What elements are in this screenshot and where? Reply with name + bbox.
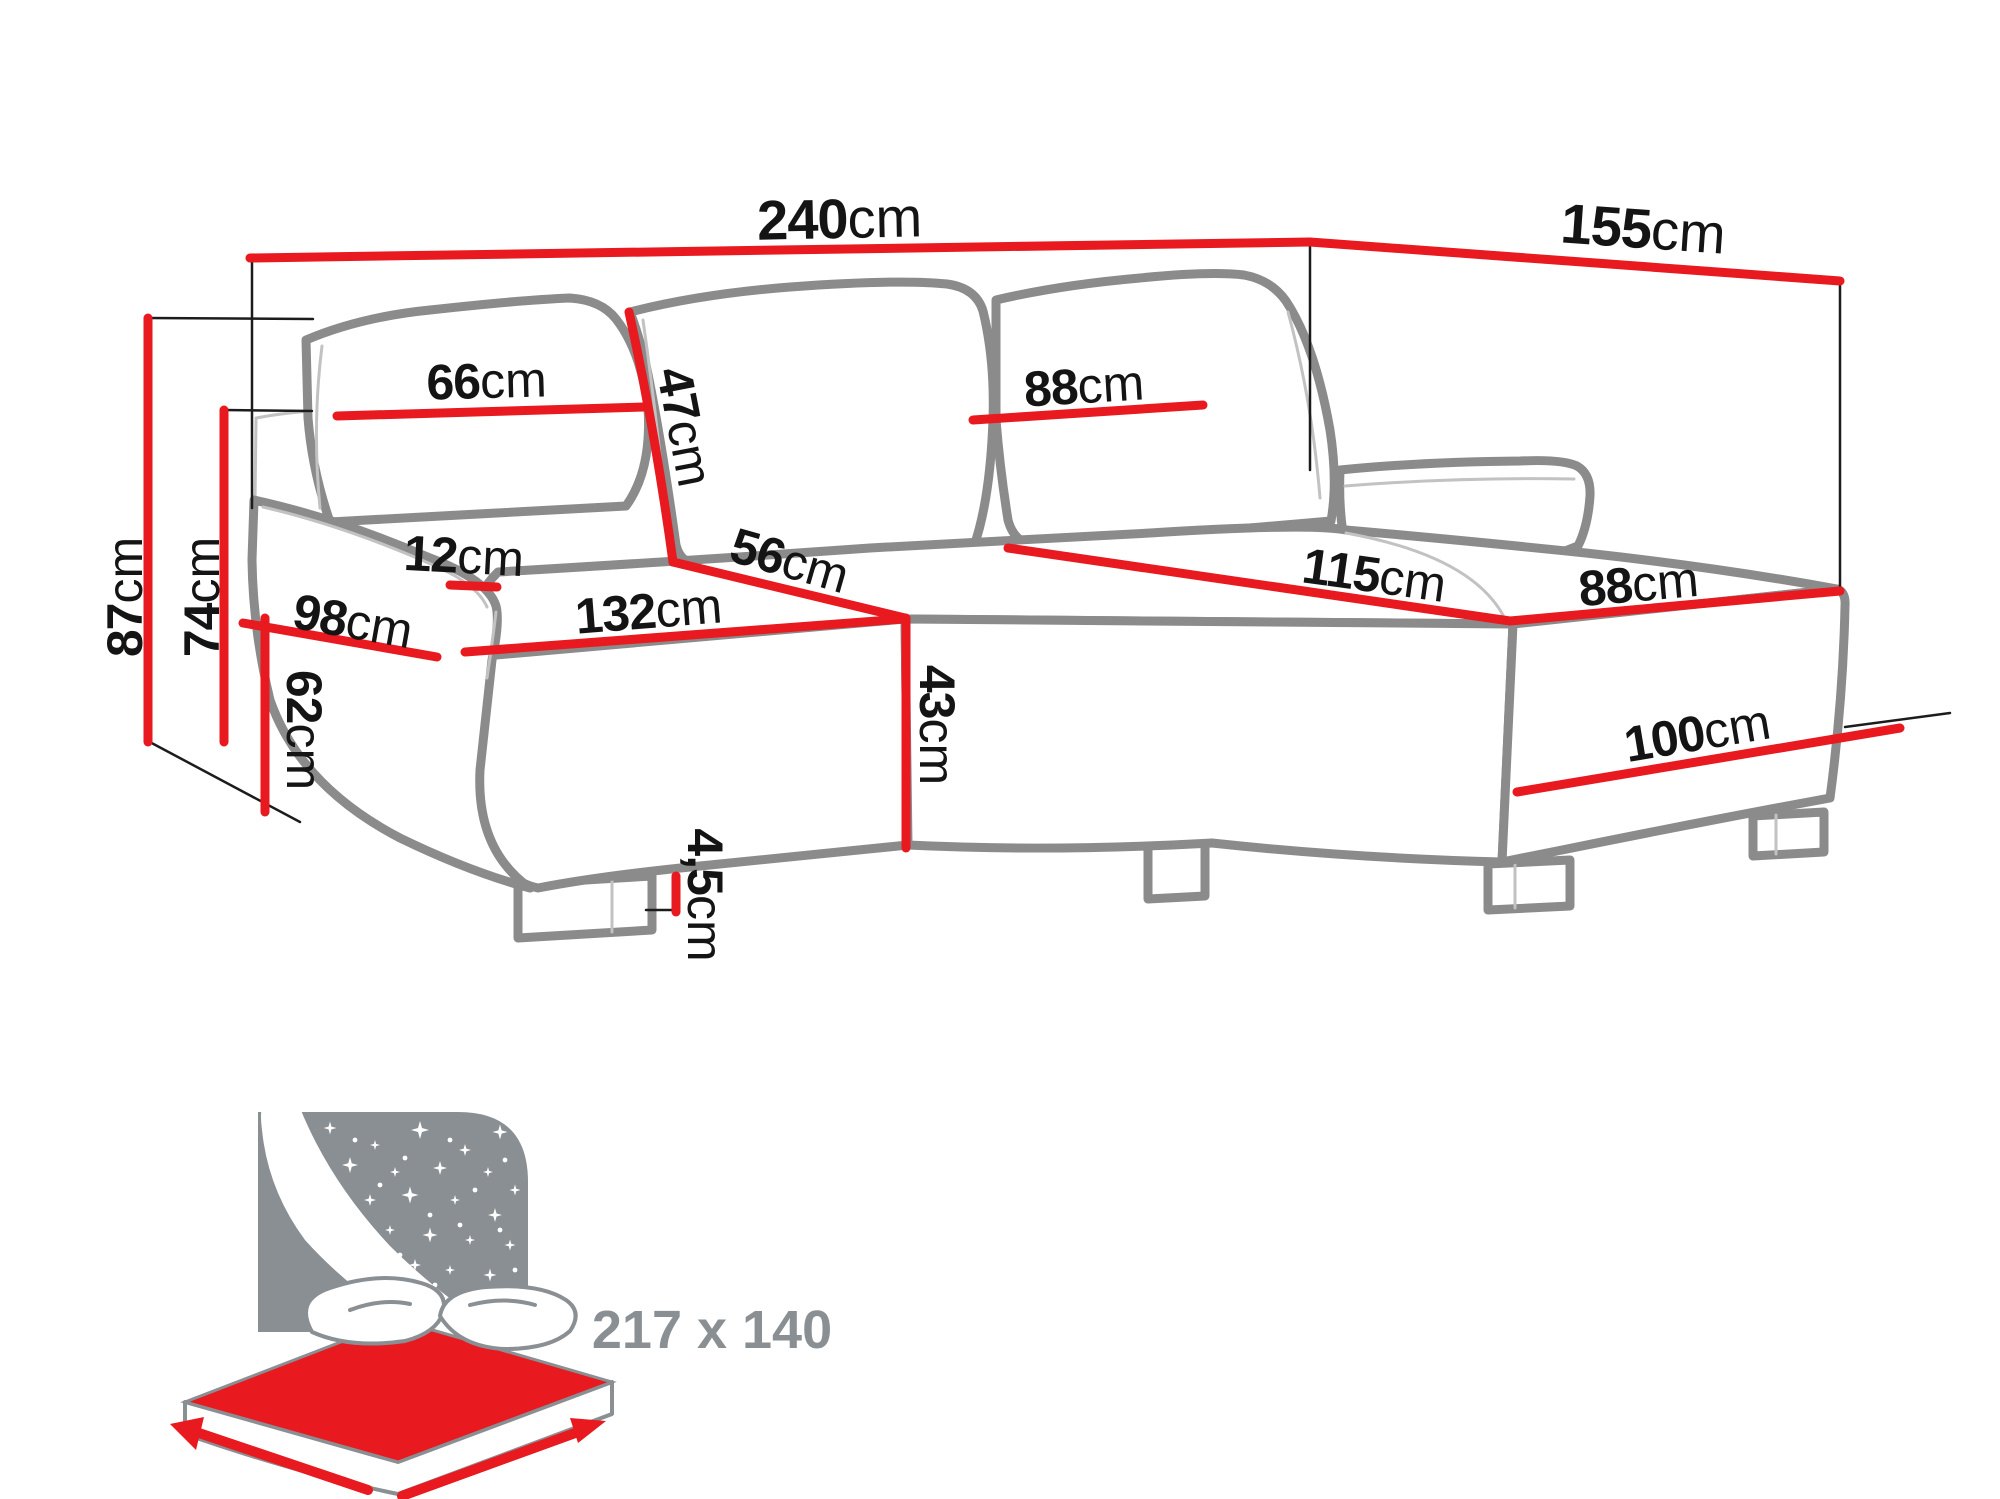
dim-label-66: 66cm (426, 351, 548, 410)
dim-label-4-5: 4,5cm (677, 828, 733, 961)
dim-label-62: 62cm (276, 670, 332, 790)
dim-label-87: 87cm (97, 537, 153, 657)
star-dot-icon (428, 1213, 433, 1218)
dim-label-155: 155cm (1559, 191, 1728, 265)
arrow-head-icon (170, 1417, 204, 1450)
star-dot-icon (473, 1188, 478, 1193)
dim-label-12: 12cm (402, 525, 525, 587)
sofa-leg (1148, 842, 1205, 899)
pillow (306, 1278, 444, 1344)
chaise-left-face (905, 619, 1513, 862)
arrow-head-icon (570, 1418, 606, 1443)
star-dot-icon (458, 1223, 463, 1228)
star-dot-icon (403, 1156, 408, 1161)
star-dot-icon (448, 1138, 453, 1143)
star-dot-icon (398, 1253, 403, 1258)
furniture-dimension-diagram: 240cm 155cm 87cm 74cm 66cm 47cm 88cm 12c… (0, 0, 2000, 1499)
guide-line (224, 410, 312, 411)
dim-label-240: 240cm (756, 185, 922, 251)
back-frame-edge (255, 420, 256, 502)
dim-label-132: 132cm (573, 577, 724, 644)
dim-label-88-back: 88cm (1022, 354, 1145, 417)
dim-label-88-chaise: 88cm (1576, 551, 1701, 617)
star-dot-icon (513, 1268, 518, 1273)
star-dot-icon (378, 1183, 383, 1188)
star-dot-icon (498, 1228, 503, 1233)
sofa-leg (1753, 812, 1824, 856)
sleeping-area-icon: 217 x 140 (170, 1108, 832, 1496)
guide-line (148, 318, 313, 319)
star-dot-icon (353, 1138, 358, 1143)
dim-label-43: 43cm (909, 665, 965, 785)
sofa-leg (1488, 860, 1570, 910)
sleeping-area-size: 217 x 140 (592, 1300, 832, 1360)
dim-label-74: 74cm (174, 537, 230, 657)
star-dot-icon (503, 1158, 508, 1163)
